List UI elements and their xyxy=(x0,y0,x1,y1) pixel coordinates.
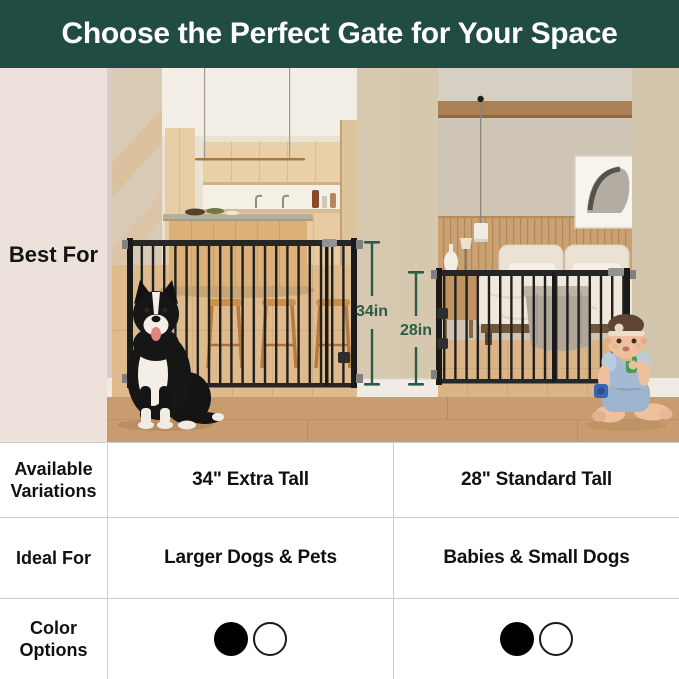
variation-28-cell: 28" Standard Tall xyxy=(393,442,679,517)
color-options-34-cell xyxy=(107,598,393,679)
title-banner: Choose the Perfect Gate for Your Space xyxy=(0,0,679,68)
ideal-for-28-cell: Babies & Small Dogs xyxy=(393,517,679,598)
page-title: Choose the Perfect Gate for Your Space xyxy=(62,17,618,51)
color-swatch-black xyxy=(214,622,248,656)
variation-34-cell: 34" Extra Tall xyxy=(107,442,393,517)
color-options-28-cell xyxy=(393,598,679,679)
color-swatch-black xyxy=(500,622,534,656)
swatch-group-left xyxy=(214,622,287,656)
color-swatch-white xyxy=(253,622,287,656)
comparison-photos: 34in 28in xyxy=(107,68,679,442)
best-for-row: Best For xyxy=(0,68,679,442)
row-label-available-variations: Available Variations xyxy=(0,442,107,517)
swatch-group-right xyxy=(500,622,573,656)
comparison-table: Available Variations 34" Extra Tall 28" … xyxy=(0,442,679,679)
row-label-ideal-for: Ideal For xyxy=(0,517,107,598)
best-for-label: Best For xyxy=(0,68,107,442)
gate-comparison-image: Choose the Perfect Gate for Your Space B… xyxy=(0,0,679,679)
gate-height-28in-label: 28in xyxy=(400,322,432,340)
row-label-color-options: Color Options xyxy=(0,598,107,679)
gate-height-34in-label: 34in xyxy=(356,303,388,321)
color-swatch-white xyxy=(539,622,573,656)
ideal-for-34-cell: Larger Dogs & Pets xyxy=(107,517,393,598)
